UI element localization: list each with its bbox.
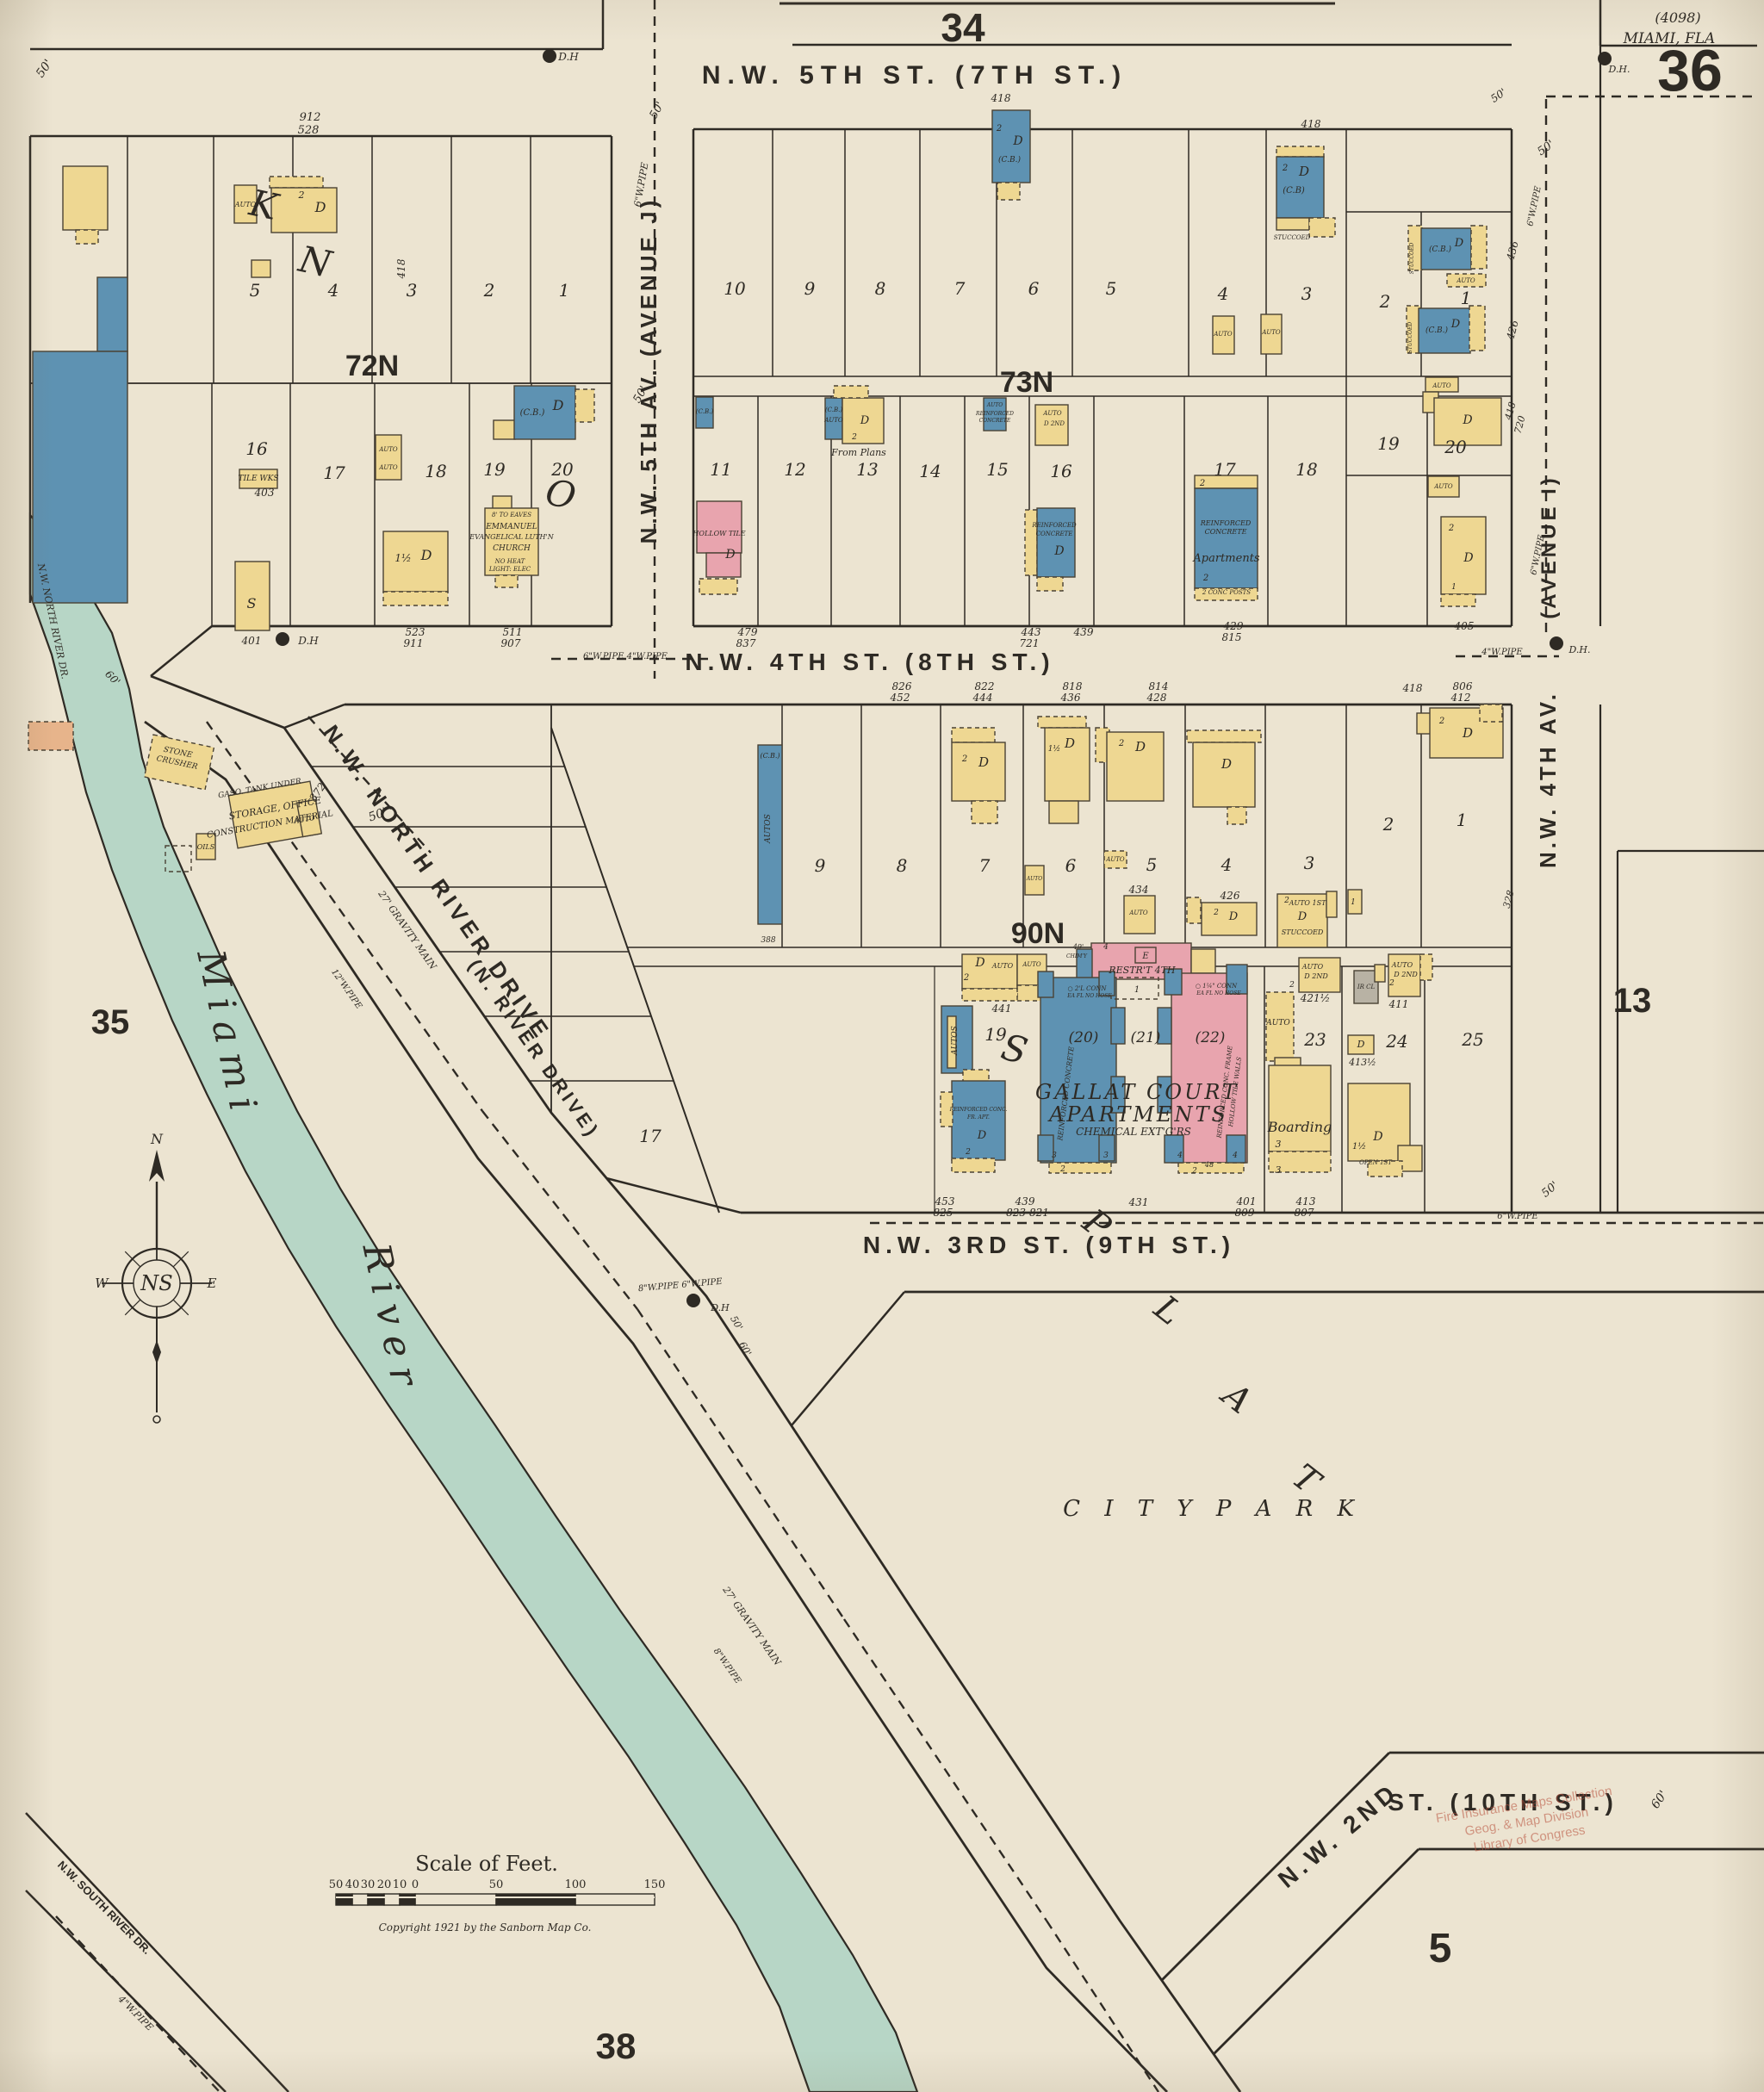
map-label: 328 bbox=[1501, 889, 1517, 909]
water-pipe-lines bbox=[56, 0, 1764, 2092]
map-line bbox=[26, 1813, 289, 2092]
map-label: D bbox=[1462, 725, 1473, 741]
map-label: 5 bbox=[1106, 278, 1117, 299]
building bbox=[1471, 226, 1487, 269]
map-label: 4 bbox=[1232, 1152, 1238, 1160]
scale-segment bbox=[575, 1894, 655, 1905]
map-label: APARTMENTS bbox=[1047, 1102, 1228, 1127]
scale-title: Scale of Feet. bbox=[415, 1852, 558, 1876]
scale-tick-label: 40 bbox=[345, 1878, 360, 1891]
map-label: D 2ND bbox=[1303, 972, 1328, 980]
map-label: 2 bbox=[1289, 981, 1295, 990]
scale-tick-label: 50 bbox=[329, 1878, 344, 1891]
map-label: D.H. bbox=[1607, 64, 1630, 75]
map-label: 6 bbox=[1028, 278, 1040, 299]
map-label: REINFORCED bbox=[1031, 522, 1077, 529]
map-label: ○ 1¼" CONN bbox=[1196, 983, 1238, 990]
building bbox=[699, 579, 737, 594]
map-label: 528 bbox=[298, 124, 320, 137]
map-label: 3 bbox=[1304, 853, 1315, 873]
map-label: 418 bbox=[1402, 682, 1423, 694]
map-label: 5 bbox=[1429, 1926, 1452, 1971]
map-label: D bbox=[1134, 739, 1146, 754]
map-label: STUCCOED bbox=[1274, 234, 1311, 241]
map-label: 2 bbox=[1379, 291, 1391, 312]
map-label: 8"W.PIPE 6"W.PIPE bbox=[638, 1277, 724, 1294]
map-label: 18 bbox=[1295, 459, 1317, 480]
map-label: 2 bbox=[963, 973, 969, 983]
map-label: 818 bbox=[1063, 680, 1083, 692]
map-label: 38 bbox=[596, 2026, 637, 2066]
map-line bbox=[551, 728, 719, 1213]
map-label: 19 bbox=[984, 1024, 1007, 1045]
map-label: 13 bbox=[856, 459, 878, 480]
map-label: AUTO bbox=[1432, 382, 1451, 389]
map-label: 837 bbox=[736, 637, 756, 649]
map-label: D bbox=[977, 1129, 987, 1142]
map-label: D.H bbox=[557, 51, 579, 63]
map-label: 9 bbox=[815, 855, 826, 876]
building bbox=[252, 260, 270, 277]
map-label: GALLAT COURT bbox=[1035, 1080, 1239, 1104]
map-label: 19 bbox=[1377, 433, 1400, 454]
map-label: AUTO bbox=[1433, 483, 1453, 490]
map-label: 426 bbox=[1504, 319, 1521, 342]
map-label: (21) bbox=[1131, 1029, 1161, 1046]
map-label: 405 bbox=[1454, 620, 1475, 632]
map-label: D bbox=[1012, 134, 1022, 148]
map-label: N.W. SOUTH RIVER DR. bbox=[55, 1859, 153, 1957]
building bbox=[952, 728, 995, 742]
scale-segment bbox=[352, 1894, 368, 1905]
hydrant-icon bbox=[1550, 636, 1563, 650]
map-label: 2 bbox=[298, 189, 305, 201]
scale-tick-label: 50 bbox=[489, 1878, 504, 1891]
map-label: 36 bbox=[1657, 38, 1723, 103]
map-label: D bbox=[860, 414, 870, 427]
map-label: (C.B) bbox=[1283, 186, 1305, 196]
map-label: 1 bbox=[1134, 985, 1140, 995]
map-label: IR CL bbox=[1357, 984, 1376, 990]
map-label: 8"W.PIPE bbox=[711, 1647, 743, 1686]
map-label: 6"W.PIPE bbox=[1525, 184, 1543, 227]
map-label: 16 bbox=[1050, 461, 1072, 481]
map-label: 9 bbox=[804, 278, 816, 299]
map-label: TILE WKS bbox=[238, 475, 278, 483]
map-label: 4"W.PIPE bbox=[115, 1993, 156, 2033]
map-label: 720 bbox=[1512, 414, 1528, 435]
map-label: (C.B.) bbox=[760, 752, 780, 760]
map-label: (C.B.) bbox=[520, 408, 545, 418]
building bbox=[1276, 218, 1309, 230]
map-label: AUTO bbox=[823, 417, 843, 424]
map-label: S bbox=[247, 595, 257, 611]
map-label: 4"W.PIPE bbox=[1481, 648, 1523, 657]
map-line bbox=[1162, 1753, 1389, 1980]
map-label: N.W. 4TH AV. bbox=[1535, 691, 1561, 868]
map-label: N.W. 2ND bbox=[1273, 1777, 1404, 1893]
map-label: 18 bbox=[425, 461, 446, 481]
map-label: OILS bbox=[197, 843, 215, 851]
map-label: 2 bbox=[1438, 717, 1444, 726]
road-edge bbox=[151, 676, 1240, 2092]
compass-letter: E bbox=[207, 1276, 217, 1291]
map-label: 7 bbox=[954, 278, 966, 299]
map-label: AUTO bbox=[378, 446, 398, 453]
map-label: AUTO bbox=[1261, 329, 1281, 336]
map-label: 3 bbox=[1301, 283, 1313, 304]
map-label: (C.B.) bbox=[825, 407, 842, 413]
map-label: 426 bbox=[1220, 890, 1240, 902]
map-label: D bbox=[1454, 237, 1464, 250]
map-label: D bbox=[1298, 164, 1309, 179]
map-label: 2 bbox=[1199, 479, 1205, 488]
map-label: 50' bbox=[1539, 1179, 1561, 1200]
map-label: (C.B.) bbox=[1425, 326, 1448, 335]
map-label: EA FL NO HOSE bbox=[1066, 993, 1112, 999]
map-label: 441 bbox=[991, 1003, 1012, 1015]
compass-letter: N bbox=[150, 1131, 164, 1147]
map-label: AUTO bbox=[1042, 410, 1062, 417]
map-label: 452 bbox=[890, 692, 910, 704]
map-label: 34 bbox=[941, 5, 985, 50]
map-label: C I T Y P A R K bbox=[1063, 1496, 1363, 1522]
compass-rose-icon: NWENS bbox=[95, 1131, 216, 1423]
map-label: (C.B.) bbox=[696, 408, 713, 415]
compass-letter: NS bbox=[140, 1271, 172, 1295]
map-label: N.W. 4TH ST. (8TH ST.) bbox=[685, 649, 1054, 675]
map-label: 60' bbox=[1649, 1788, 1671, 1811]
building bbox=[1038, 717, 1086, 728]
map-label: 443 bbox=[1021, 626, 1041, 638]
pipe-dash-line bbox=[482, 1111, 637, 1309]
map-label: 2 bbox=[1202, 574, 1208, 583]
map-label: HOLLOW TILE bbox=[692, 530, 745, 537]
map-label: 822 bbox=[975, 680, 995, 692]
map-label: 72N bbox=[345, 350, 399, 382]
map-label: E bbox=[1141, 952, 1149, 961]
map-line bbox=[792, 1292, 904, 1425]
hydrant-icon bbox=[276, 632, 289, 646]
map-label: 453 bbox=[935, 1195, 955, 1207]
map-label: 3 bbox=[1276, 1164, 1282, 1176]
map-label: 479 bbox=[737, 626, 758, 638]
map-label: 2 bbox=[1382, 814, 1394, 835]
map-label: 401 bbox=[1236, 1195, 1257, 1207]
building bbox=[972, 801, 997, 823]
building bbox=[76, 230, 98, 244]
map-label: 2 bbox=[1448, 524, 1454, 533]
map-label: D bbox=[1221, 756, 1232, 772]
map-label: Boarding bbox=[1267, 1119, 1332, 1135]
map-label: 13 bbox=[1613, 982, 1652, 1020]
map-label: D bbox=[420, 547, 432, 563]
map-label: D 2ND bbox=[1393, 971, 1418, 978]
map-label: 1 bbox=[1457, 810, 1468, 830]
building bbox=[1326, 891, 1337, 917]
map-label: 431 bbox=[1128, 1196, 1149, 1208]
building bbox=[1187, 897, 1201, 923]
map-label: D bbox=[552, 397, 564, 413]
map-label: 428 bbox=[1146, 692, 1167, 704]
hydrant-icon bbox=[543, 49, 556, 63]
map-label: 806 bbox=[1453, 680, 1473, 692]
map-label: 825 bbox=[934, 1207, 953, 1219]
map-label: 2 bbox=[1059, 1165, 1065, 1174]
building bbox=[1227, 807, 1246, 824]
map-label: STUCCOED bbox=[1407, 322, 1413, 354]
sanborn-map-sheet: N.W. 5TH ST. (7TH ST.)34N.W. 4TH ST. (8T… bbox=[0, 0, 1764, 2092]
map-label: 50' bbox=[1535, 138, 1556, 158]
map-label: ○ 2'L CONN bbox=[1068, 985, 1108, 992]
building bbox=[383, 531, 448, 592]
building bbox=[962, 954, 1017, 989]
map-label: NO HEAT bbox=[494, 558, 526, 565]
map-label: EVANGELICAL LUTH'N bbox=[469, 533, 554, 541]
map-label: 403 bbox=[254, 487, 275, 499]
map-label: 434 bbox=[1128, 884, 1149, 896]
map-label: 8 bbox=[897, 855, 908, 876]
map-label: AUTO bbox=[1022, 961, 1041, 968]
map-label: CHIM'Y bbox=[1066, 953, 1088, 959]
scale-segment bbox=[384, 1894, 400, 1905]
map-label: 7 bbox=[979, 855, 991, 876]
building bbox=[992, 110, 1030, 183]
map-label: D.H bbox=[297, 635, 319, 647]
scale-tick-label: 10 bbox=[393, 1878, 407, 1891]
map-label: D bbox=[1297, 910, 1307, 923]
map-label: 2 bbox=[851, 433, 857, 442]
pipe-dash-line bbox=[637, 1309, 844, 1619]
map-label: 911 bbox=[404, 637, 424, 649]
scale-tick-label: 30 bbox=[361, 1878, 376, 1891]
building bbox=[1420, 954, 1432, 980]
map-label: 418 bbox=[395, 258, 407, 279]
map-label: D bbox=[1064, 736, 1075, 751]
map-label: AUTO bbox=[1213, 331, 1233, 338]
building bbox=[962, 989, 1017, 1001]
building bbox=[952, 1081, 1005, 1160]
map-label: 3 bbox=[407, 280, 418, 301]
map-label: AUTO bbox=[378, 464, 398, 471]
hydrant-icon bbox=[686, 1294, 700, 1307]
building bbox=[1025, 510, 1037, 575]
map-label: 439 bbox=[1073, 626, 1094, 638]
map-label: CHEMICAL EXT'G'RS bbox=[1076, 1126, 1191, 1138]
pipe-dash-line bbox=[844, 1619, 1047, 1921]
map-label: 4 bbox=[327, 280, 339, 301]
building bbox=[952, 1158, 995, 1172]
building bbox=[1187, 730, 1261, 742]
map-label: 50' bbox=[1488, 86, 1508, 105]
map-label: 27' GRAVITY MAIN bbox=[376, 888, 439, 972]
map-label: 15 bbox=[986, 459, 1008, 480]
map-label: 19 bbox=[483, 459, 506, 480]
map-label: N.W. 5TH ST. (7TH ST.) bbox=[702, 61, 1127, 90]
scale-segment bbox=[336, 1894, 352, 1905]
map-line bbox=[1214, 1849, 1419, 2054]
map-label: 1½ bbox=[1048, 744, 1060, 754]
map-label: D bbox=[724, 548, 735, 562]
map-label: D bbox=[1228, 910, 1239, 923]
building bbox=[383, 592, 448, 605]
map-label: 388 bbox=[761, 936, 775, 945]
map-label: 815 bbox=[1222, 631, 1242, 643]
building bbox=[1375, 965, 1385, 982]
map-label: 3 bbox=[1276, 1139, 1282, 1150]
map-label: 35 bbox=[91, 1003, 130, 1041]
scale-tick-label: 20 bbox=[377, 1878, 392, 1891]
map-line bbox=[151, 626, 212, 676]
building bbox=[1191, 949, 1215, 973]
map-label: 418 bbox=[991, 92, 1011, 104]
building bbox=[963, 1070, 989, 1082]
river-drive-road bbox=[145, 676, 1240, 2092]
map-label: 2 bbox=[1388, 979, 1394, 988]
building bbox=[834, 386, 868, 398]
map-label: D bbox=[1450, 318, 1461, 331]
map-label: 2 bbox=[1213, 909, 1219, 917]
map-label: 48 bbox=[1204, 1161, 1214, 1169]
map-label: (C.B.) bbox=[998, 155, 1021, 165]
map-label: AUTO bbox=[1265, 1019, 1290, 1027]
map-label: 73N bbox=[1000, 366, 1053, 399]
map-label: 23 bbox=[1303, 1029, 1326, 1050]
map-label: (4098) bbox=[1655, 9, 1700, 26]
copyright-note: Copyright 1921 by the Sanborn Map Co. bbox=[379, 1921, 592, 1934]
map-label: AUTO bbox=[1456, 277, 1475, 284]
map-label: 16 bbox=[245, 438, 268, 459]
map-label: 418 bbox=[1301, 118, 1321, 130]
map-line bbox=[606, 1178, 741, 1213]
map-label: 1½ bbox=[394, 552, 411, 564]
map-label: 511 bbox=[503, 626, 523, 638]
map-label: 823-821 bbox=[1006, 1207, 1049, 1219]
map-label: STUCCOED bbox=[1409, 243, 1415, 275]
map-label: 1 bbox=[1461, 288, 1472, 308]
map-label: 50' bbox=[34, 57, 56, 80]
map-label: 12 bbox=[784, 459, 805, 480]
map-label: CONCRETE bbox=[1205, 528, 1247, 536]
map-label: 6"W.PIPE bbox=[1497, 1212, 1538, 1221]
building bbox=[706, 553, 741, 577]
map-label: D 2ND bbox=[1043, 420, 1065, 427]
map-label: 4 bbox=[1102, 943, 1109, 952]
building bbox=[1193, 742, 1255, 807]
map-label: 444 bbox=[972, 692, 993, 704]
map-label: EMMANUEL bbox=[485, 523, 537, 531]
map-label: AUTOS bbox=[764, 814, 773, 844]
scale-segment bbox=[368, 1894, 384, 1905]
map-label: 12"W.PIPE bbox=[329, 967, 363, 1011]
building bbox=[97, 277, 127, 351]
map-label: RESTR'T 4TH bbox=[1108, 965, 1176, 976]
building bbox=[1309, 218, 1335, 237]
building bbox=[1049, 1163, 1111, 1173]
scale-tick-label: 100 bbox=[565, 1878, 587, 1891]
map-label: D.H. bbox=[1568, 644, 1590, 655]
building bbox=[1049, 801, 1078, 823]
map-label: (20) bbox=[1069, 1029, 1099, 1046]
map-label: 25 bbox=[1461, 1029, 1483, 1050]
map-label: 90N bbox=[1011, 917, 1065, 950]
map-label: AUTO bbox=[991, 962, 1014, 970]
map-label: AUTO bbox=[1128, 909, 1148, 916]
map-label: 8' TO EAVES bbox=[492, 512, 531, 518]
building bbox=[1037, 577, 1063, 591]
map-label: EA FL NO HOSE bbox=[1196, 990, 1241, 996]
map-label: 17 bbox=[639, 1126, 661, 1146]
map-label: D bbox=[1463, 551, 1473, 565]
map-label: 4 bbox=[1177, 1152, 1183, 1160]
map-label: 2 bbox=[1118, 739, 1124, 748]
map-label: AUTO bbox=[1391, 961, 1413, 969]
map-label: 721 bbox=[1020, 637, 1040, 649]
building bbox=[1037, 508, 1075, 577]
map-label: AUTO 1ST bbox=[1289, 899, 1327, 907]
map-label: 10 bbox=[724, 278, 746, 299]
map-label: 2 bbox=[965, 1148, 971, 1157]
map-label: 17 bbox=[323, 462, 345, 483]
map-label: D bbox=[974, 956, 984, 970]
building bbox=[697, 501, 742, 553]
map-label: 17 bbox=[1214, 459, 1236, 480]
map-label: 14 bbox=[919, 461, 941, 481]
map-label: 907 bbox=[501, 637, 521, 649]
map-label: REINFORCED CONC. bbox=[949, 1107, 1008, 1113]
street-block-lines bbox=[26, 0, 1764, 2092]
map-label: (C.B.) bbox=[1429, 245, 1451, 254]
map-label: N.W. 3RD ST. (9TH ST.) bbox=[863, 1232, 1235, 1258]
scale-segment bbox=[496, 1894, 575, 1905]
map-label: REINFORCED bbox=[1200, 519, 1252, 527]
map-label: 4 bbox=[1221, 854, 1233, 875]
map-label: D bbox=[978, 754, 989, 770]
map-label: 814 bbox=[1149, 680, 1169, 692]
map-label: D.H bbox=[710, 1302, 730, 1313]
building bbox=[1469, 306, 1485, 351]
building bbox=[952, 742, 1005, 801]
map-label: 1 bbox=[1451, 583, 1457, 592]
map-label: 436 bbox=[1060, 692, 1081, 704]
map-label: 523 bbox=[406, 626, 425, 638]
map-label: 826 bbox=[892, 680, 912, 692]
building bbox=[1038, 972, 1053, 997]
map-label: 809 bbox=[1235, 1207, 1255, 1219]
map-label: AUTO bbox=[1301, 963, 1324, 971]
map-label: 27' GRAVITY MAIN bbox=[720, 1584, 784, 1667]
map-label: 401 bbox=[241, 635, 262, 647]
map-label: N bbox=[295, 238, 336, 286]
map-label: A bbox=[1212, 1373, 1258, 1421]
map-label: D bbox=[1462, 413, 1472, 427]
scale-segment bbox=[400, 1894, 415, 1905]
map-label: 24 bbox=[1385, 1031, 1407, 1052]
map-label: CONCRETE bbox=[1036, 531, 1073, 537]
map-label: 413½ bbox=[1348, 1057, 1376, 1068]
map-label: 11 bbox=[710, 459, 731, 480]
map-label: OPEN 1ST bbox=[1359, 1159, 1393, 1166]
map-label: FR. APT. bbox=[966, 1114, 990, 1120]
building bbox=[575, 389, 594, 422]
map-label: LIGHT: ELEC bbox=[488, 566, 531, 573]
map-label: 2 bbox=[996, 124, 1002, 133]
building bbox=[1111, 1008, 1125, 1044]
building bbox=[1276, 146, 1324, 157]
map-label: CONCRETE bbox=[979, 418, 1011, 424]
map-label: 50' bbox=[647, 100, 667, 121]
map-label: D bbox=[314, 199, 326, 215]
